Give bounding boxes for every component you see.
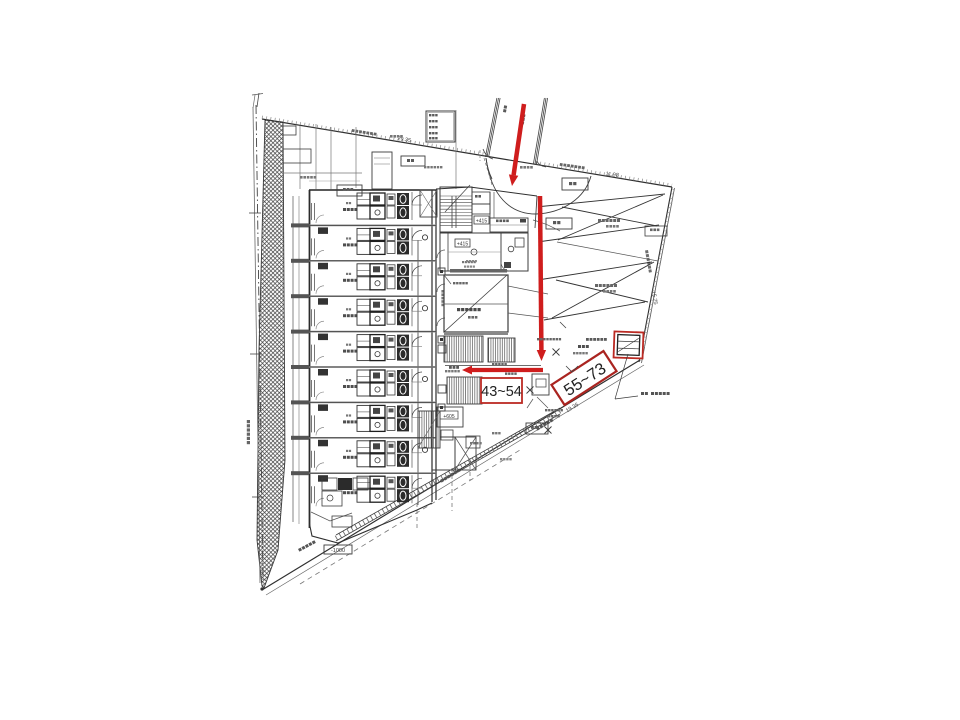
svg-text:-1000: -1000 [331, 548, 345, 554]
svg-text:+415: +415 [476, 219, 487, 225]
svg-text:+415: +415 [457, 242, 468, 248]
svg-text:43~54: 43~54 [481, 384, 522, 400]
svg-text:+605: +605 [443, 414, 454, 420]
